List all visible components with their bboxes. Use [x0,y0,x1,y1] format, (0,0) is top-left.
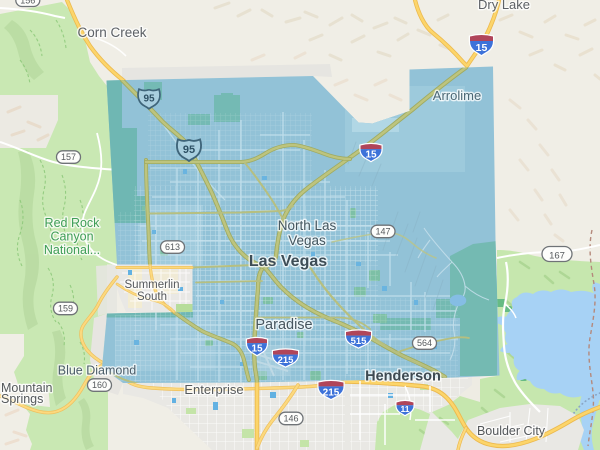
svg-text:215: 215 [278,355,295,366]
svg-text:167: 167 [549,250,565,261]
svg-text:515: 515 [351,336,368,347]
svg-text:Blue Diamond: Blue Diamond [58,364,137,378]
svg-text:Arrolime: Arrolime [433,88,481,103]
svg-text:North Las: North Las [278,218,337,233]
svg-text:15: 15 [476,42,488,54]
svg-text:146: 146 [283,414,298,424]
svg-text:157: 157 [61,152,76,162]
svg-text:Las Vegas: Las Vegas [249,253,327,270]
svg-text:Boulder City: Boulder City [477,424,546,438]
svg-text:Canyon: Canyon [50,230,93,244]
svg-text:South: South [137,291,167,303]
svg-text:Dry Lake: Dry Lake [478,0,530,12]
svg-text:Summerlin: Summerlin [125,279,180,291]
svg-text:Paradise: Paradise [255,317,312,333]
svg-text:160: 160 [92,380,107,390]
svg-text:11: 11 [401,404,410,414]
svg-text:95: 95 [143,94,155,105]
svg-text:Henderson: Henderson [365,369,441,385]
svg-text:National...: National... [44,243,100,257]
svg-text:Red Rock: Red Rock [45,216,101,230]
svg-text:Enterprise: Enterprise [184,382,243,397]
svg-text:159: 159 [58,304,73,314]
svg-text:564: 564 [417,338,432,348]
svg-text:15: 15 [251,344,263,355]
svg-text:147: 147 [375,227,390,237]
svg-text:613: 613 [165,242,180,252]
svg-text:Corn Creek: Corn Creek [77,25,146,40]
svg-text:15: 15 [365,150,377,161]
svg-text:95: 95 [183,144,195,156]
svg-text:215: 215 [323,387,340,398]
svg-text:Springs: Springs [1,392,43,406]
svg-text:156: 156 [20,0,35,5]
svg-text:Vegas: Vegas [288,233,326,248]
